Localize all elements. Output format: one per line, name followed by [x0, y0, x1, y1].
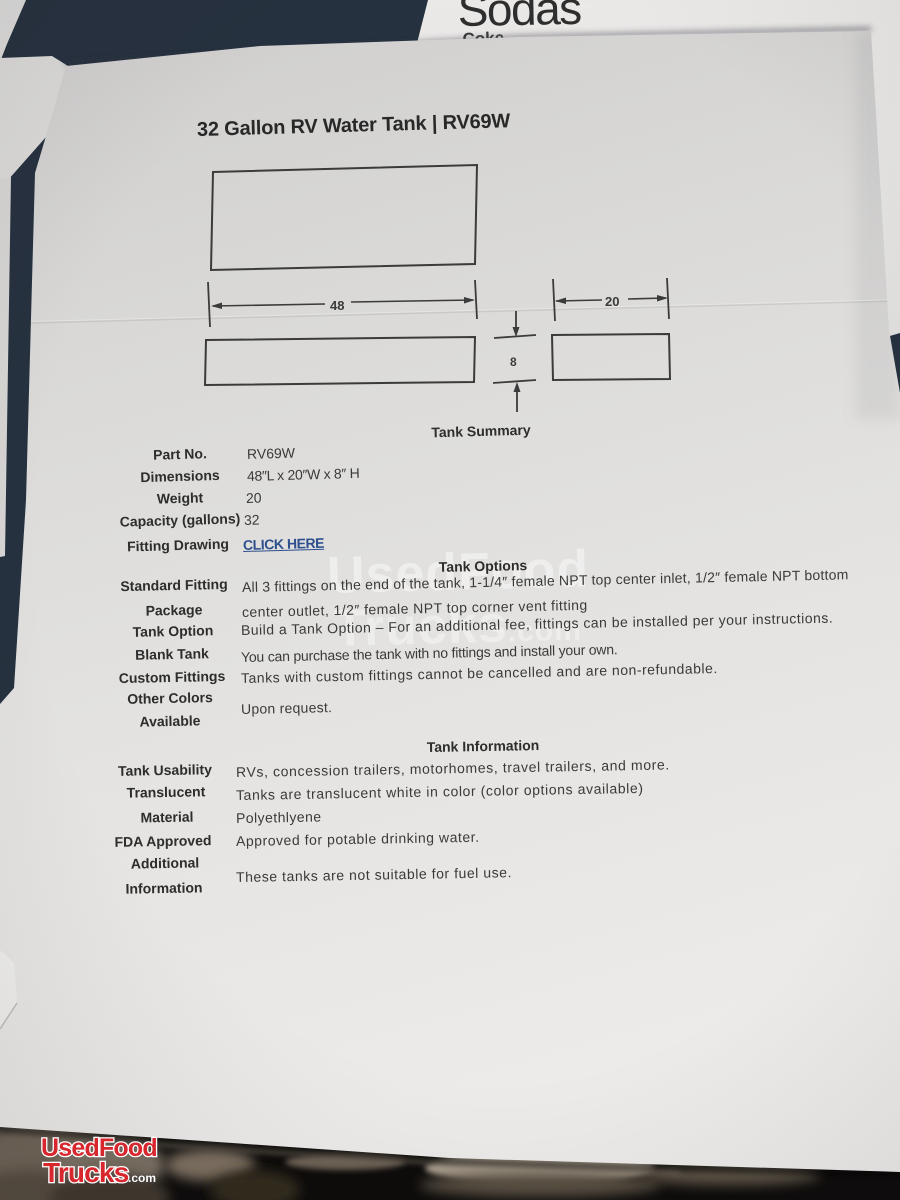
svg-text:48: 48 [330, 298, 344, 313]
svg-text:8: 8 [510, 355, 517, 369]
svg-text:.com: .com [128, 1171, 156, 1185]
svg-text:20: 20 [605, 294, 619, 309]
svg-text:Trucks: Trucks [43, 1157, 129, 1188]
